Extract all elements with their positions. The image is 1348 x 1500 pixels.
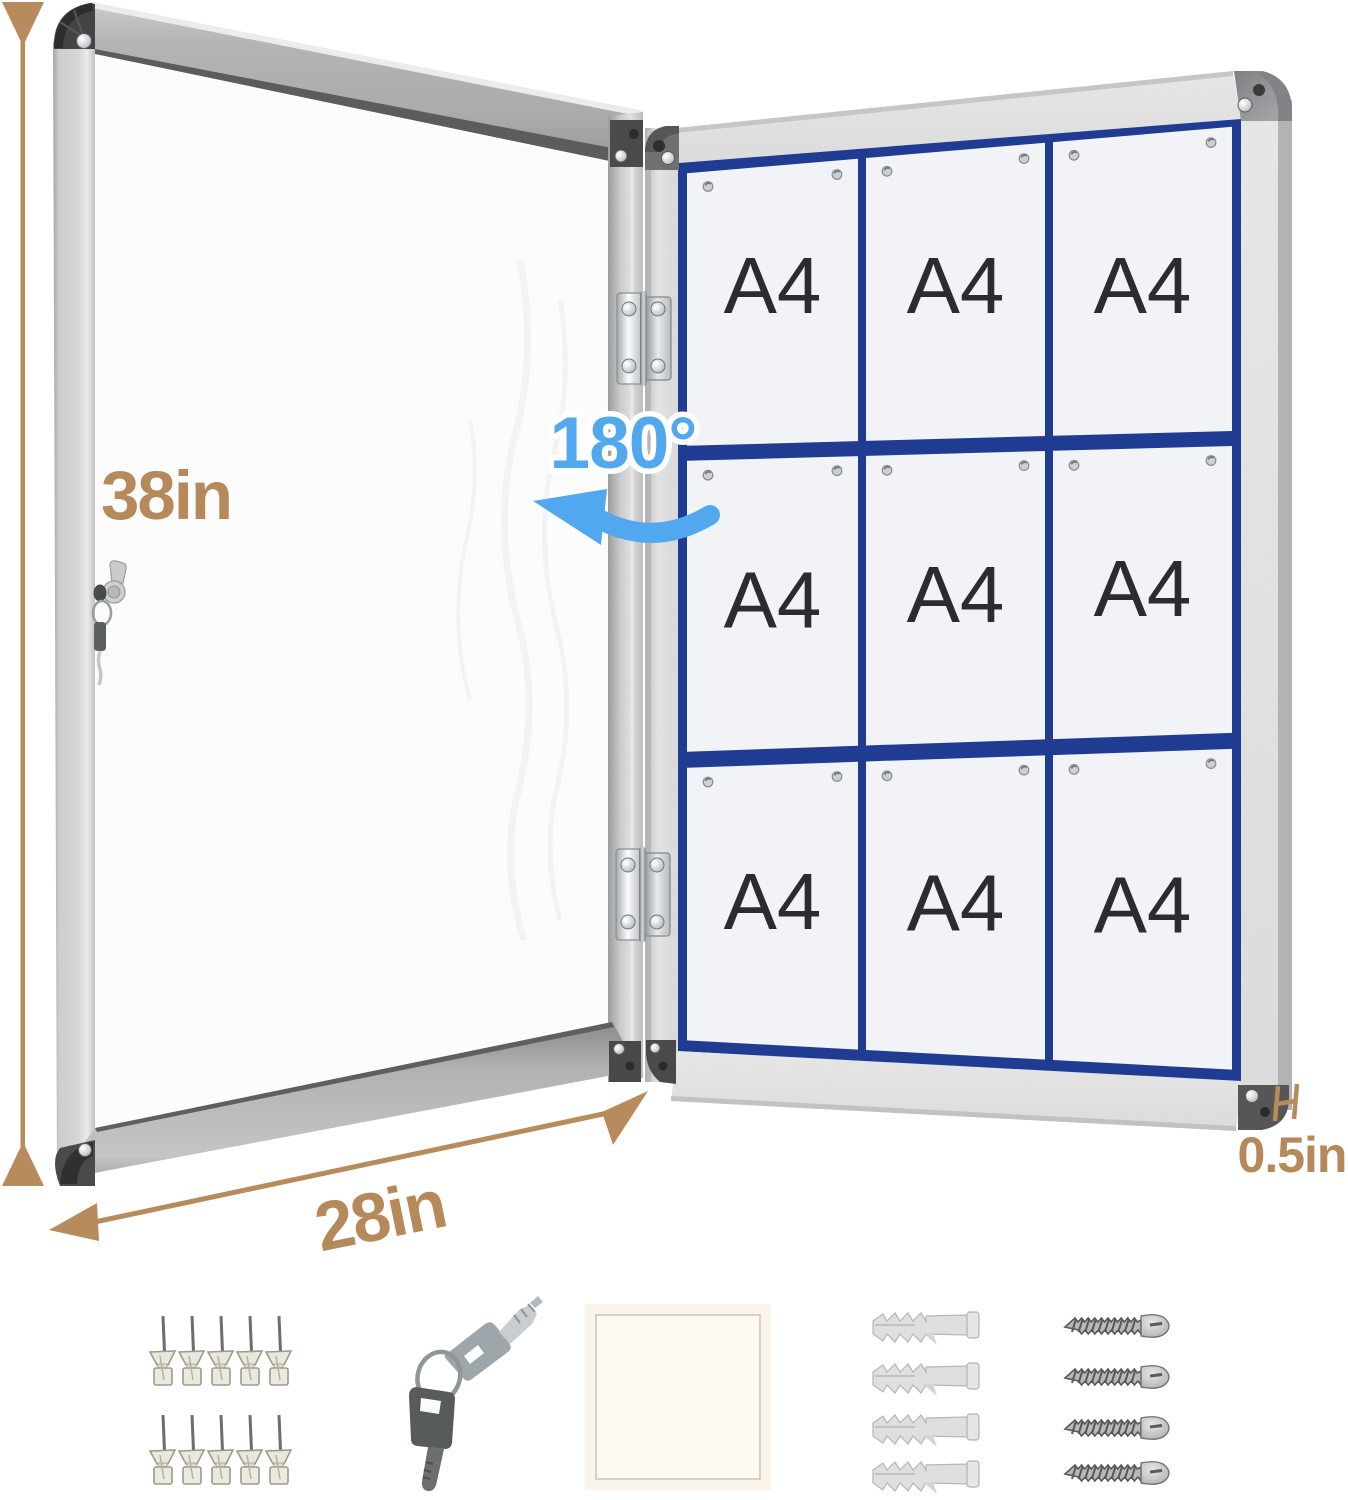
svg-text:180°: 180° bbox=[550, 403, 697, 484]
svg-text:A4: A4 bbox=[1094, 860, 1192, 949]
svg-text:A4: A4 bbox=[1094, 241, 1192, 330]
svg-text:A4: A4 bbox=[907, 550, 1005, 639]
svg-text:38in: 38in bbox=[101, 457, 231, 534]
svg-text:A4: A4 bbox=[724, 556, 822, 645]
svg-text:A4: A4 bbox=[1094, 544, 1192, 633]
svg-text:A4: A4 bbox=[907, 859, 1005, 948]
svg-text:A4: A4 bbox=[724, 857, 822, 946]
svg-text:A4: A4 bbox=[907, 241, 1005, 330]
svg-text:0.5in: 0.5in bbox=[1238, 1127, 1347, 1183]
svg-text:A4: A4 bbox=[724, 241, 822, 330]
